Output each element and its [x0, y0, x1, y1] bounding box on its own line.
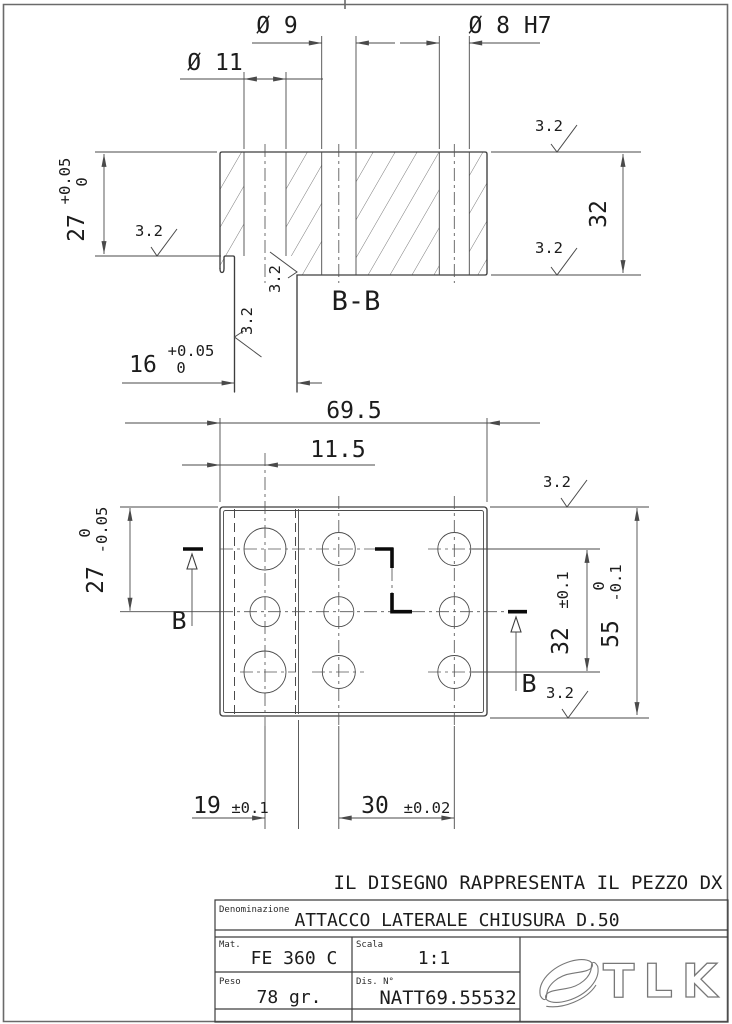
section-label: B-B: [332, 286, 381, 317]
surface-finish-value: 3.2: [135, 222, 163, 240]
surface-finish-mark: 3.2: [135, 222, 177, 256]
technical-drawing-canvas: Ø 9 Ø 8 H7 Ø 11 27 +0.05 0 32 16 +0.05 0…: [0, 0, 732, 1024]
peso-value: 78 gr.: [256, 987, 321, 1008]
surface-finish-mark: 3.2: [543, 473, 587, 507]
dis-label: Dis. N°: [356, 977, 394, 987]
company-logo: TLK: [533, 953, 727, 1012]
logo-text: TLK: [603, 954, 726, 1008]
dim-dia8: Ø 8 H7: [468, 13, 551, 39]
dim-30-tol: ±0.02: [404, 799, 451, 817]
cut-arrow-label: B: [171, 606, 186, 635]
dim-32p-tol: ±0.1: [554, 571, 572, 608]
dim-115: 11.5: [310, 437, 365, 463]
dim-55-value: 55: [598, 620, 624, 648]
cut-arrow-left: B: [171, 554, 197, 635]
surface-finish-value: 3.2: [543, 473, 571, 491]
dim-dia11: Ø 11: [187, 50, 242, 76]
scala-value: 1:1: [418, 948, 451, 969]
dis-value: NATT69.55532: [379, 987, 516, 1009]
dim-19-tol: ±0.1: [231, 799, 268, 817]
dim-16-value: 16: [129, 352, 157, 378]
surface-finish-value: 3.2: [535, 117, 563, 135]
dim-55-tol-up: 0: [590, 581, 608, 590]
note: IL DISEGNO RAPPRESENTA IL PEZZO DX: [334, 872, 723, 894]
dim-27-value: 27: [64, 214, 90, 242]
dim-695: 69.5: [326, 398, 381, 424]
dim-30-value: 30: [361, 793, 389, 819]
dim-27-tol-up: +0.05: [56, 158, 74, 205]
surface-finish-mark: 3.2: [235, 307, 262, 357]
dim-19-value: 19: [193, 793, 221, 819]
plan-view: B B 69.5: [76, 398, 649, 829]
surface-finish-value: 3.2: [546, 684, 574, 702]
cut-arrow-label: B: [521, 669, 536, 698]
mat-value: FE 360 C: [251, 948, 338, 969]
scala-label: Scala: [356, 940, 383, 950]
dim-27tv-tol-up: 0: [76, 528, 94, 537]
dim-27-tol-low: 0: [73, 177, 91, 186]
plan-centerlines: [220, 453, 505, 726]
dim-dia9: Ø 9: [256, 13, 298, 39]
title-block: Denominazione ATTACCO LATERALE CHIUSURA …: [215, 900, 728, 1022]
dim-16-tol-low: 0: [176, 359, 185, 377]
dim-16-tol-up: +0.05: [168, 342, 215, 360]
dim-27tv-value: 27: [83, 566, 109, 594]
dim-27tv-tol-low: -0.05: [93, 507, 111, 554]
surface-finish-mark: 3.2: [546, 684, 588, 718]
denominazione-value: ATTACCO LATERALE CHIUSURA D.50: [294, 910, 619, 931]
dim-55-tol-low: -0.1: [607, 564, 625, 601]
surface-finish-mark: 3.2: [266, 252, 297, 293]
drawing-sheet: Ø 9 Ø 8 H7 Ø 11 27 +0.05 0 32 16 +0.05 0…: [0, 0, 732, 1024]
surface-finish-mark: 3.2: [535, 239, 577, 275]
drawing-note-text: IL DISEGNO RAPPRESENTA IL PEZZO DX: [334, 872, 723, 894]
section-view: Ø 9 Ø 8 H7 Ø 11 27 +0.05 0 32 16 +0.05 0…: [56, 13, 641, 392]
mat-label: Mat.: [219, 940, 241, 950]
section-tab-outline: [220, 256, 235, 392]
denominazione-label: Denominazione: [219, 905, 289, 915]
surface-finish-value: 3.2: [238, 307, 256, 335]
surface-finish-value: 3.2: [535, 239, 563, 257]
hole-pattern: [244, 528, 471, 693]
dim-32p-value: 32: [548, 627, 574, 655]
surface-finish-mark: 3.2: [535, 117, 577, 152]
peso-label: Peso: [219, 977, 241, 987]
cut-arrow-right: B: [511, 617, 537, 698]
surface-finish-value: 3.2: [266, 265, 284, 293]
dim-32-value: 32: [586, 200, 612, 228]
